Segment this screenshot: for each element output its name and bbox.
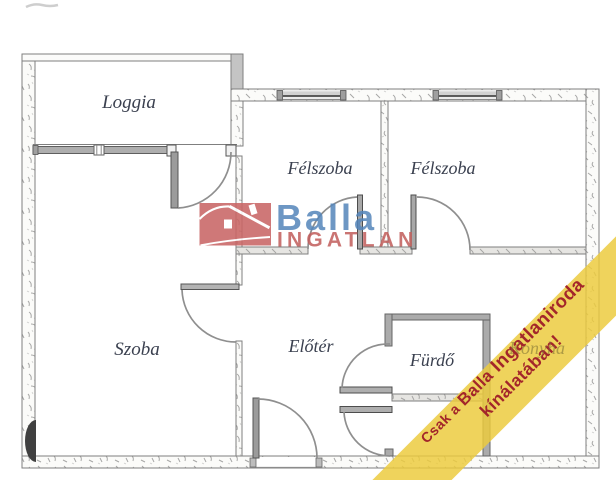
svg-text:Félszoba: Félszoba — [410, 158, 476, 178]
svg-text:Félszoba: Félszoba — [287, 158, 353, 178]
svg-text:Szoba: Szoba — [114, 339, 159, 360]
svg-text:Konyha: Konyha — [508, 338, 565, 358]
svg-text:INGATLAN: INGATLAN — [277, 229, 418, 252]
svg-text:Fürdő: Fürdő — [409, 350, 455, 370]
svg-text:Loggia: Loggia — [101, 92, 156, 113]
svg-text:Előtér: Előtér — [288, 336, 335, 356]
